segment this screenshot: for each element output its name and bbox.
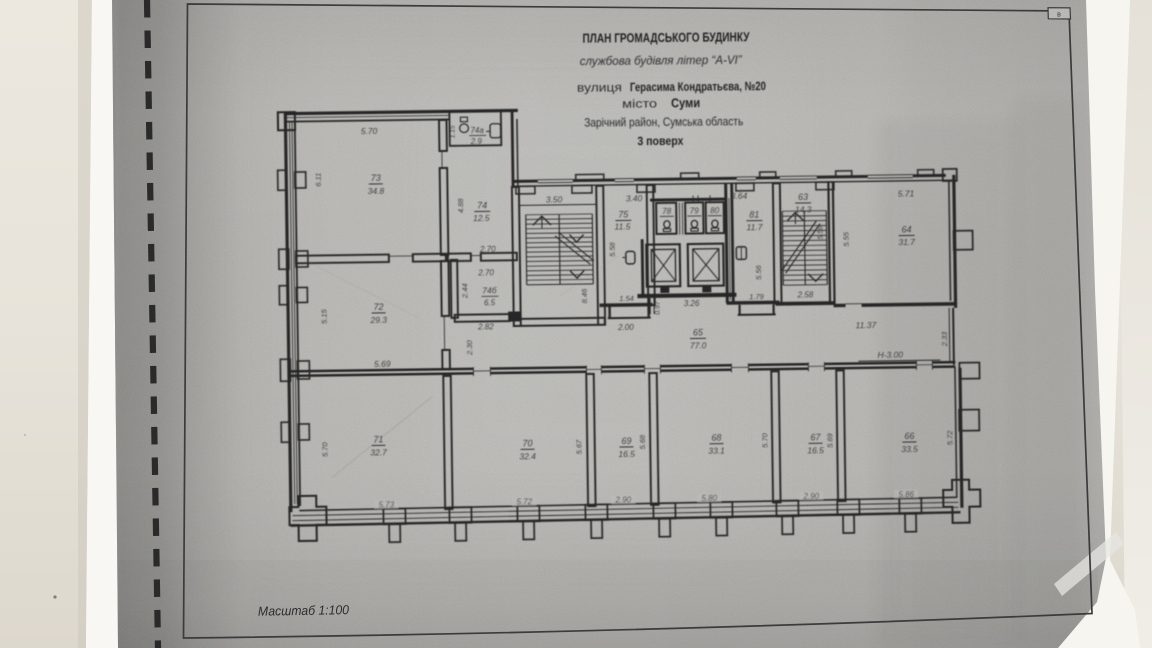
svg-text:3.26: 3.26 (684, 299, 700, 308)
svg-text:74б: 74б (482, 285, 498, 295)
svg-text:74: 74 (477, 200, 487, 210)
svg-text:16.5: 16.5 (807, 445, 824, 455)
svg-text:2.90: 2.90 (802, 492, 819, 501)
svg-text:11.37: 11.37 (855, 320, 876, 330)
svg-text:5.70: 5.70 (320, 441, 329, 457)
svg-text:5.72: 5.72 (945, 430, 954, 446)
svg-text:77.0: 77.0 (690, 340, 707, 350)
svg-text:64: 64 (901, 224, 911, 234)
svg-text:Зарічний район, Сумська област: Зарічний район, Сумська область (584, 114, 743, 129)
svg-text:Суми: Суми (671, 96, 700, 110)
svg-text:5.67: 5.67 (574, 439, 583, 455)
svg-text:11.7: 11.7 (746, 222, 762, 232)
svg-text:5.73: 5.73 (378, 500, 394, 509)
svg-text:31.7: 31.7 (898, 237, 915, 247)
svg-text:78: 78 (662, 207, 672, 216)
svg-text:3 поверх: 3 поверх (637, 134, 683, 148)
svg-text:72: 72 (373, 302, 383, 312)
svg-text:5.56: 5.56 (817, 226, 824, 240)
svg-text:5.15: 5.15 (320, 308, 329, 324)
svg-text:67: 67 (810, 432, 821, 442)
svg-text:29.3: 29.3 (369, 315, 387, 325)
svg-text:33.1: 33.1 (708, 446, 725, 456)
svg-text:ПЛАН ГРОМАДСЬКОГО БУДИНКУ: ПЛАН ГРОМАДСЬКОГО БУДИНКУ (582, 30, 749, 45)
svg-text:65: 65 (693, 327, 704, 337)
svg-text:2.58: 2.58 (797, 290, 814, 299)
svg-text:2.00: 2.00 (617, 323, 634, 332)
svg-text:5.70: 5.70 (361, 126, 378, 136)
svg-text:70: 70 (522, 438, 532, 448)
svg-text:81: 81 (749, 210, 759, 220)
svg-text:5.72: 5.72 (516, 497, 532, 506)
svg-text:5.86: 5.86 (898, 490, 914, 499)
svg-text:2.33: 2.33 (940, 331, 949, 348)
svg-text:5.56: 5.56 (754, 264, 763, 280)
svg-text:5.70: 5.70 (760, 432, 769, 448)
svg-text:5.69: 5.69 (374, 359, 391, 369)
svg-text:34.8: 34.8 (368, 186, 385, 196)
svg-text:33.5: 33.5 (901, 444, 918, 454)
svg-text:5.55: 5.55 (842, 231, 851, 247)
svg-text:8.46: 8.46 (580, 288, 589, 304)
svg-text:16.5: 16.5 (618, 449, 635, 459)
svg-text:68: 68 (711, 433, 721, 443)
svg-text:2.82: 2.82 (477, 322, 494, 331)
svg-text:2.90: 2.90 (614, 495, 631, 504)
svg-text:12.5: 12.5 (473, 213, 490, 223)
svg-text:5.58: 5.58 (608, 241, 617, 257)
svg-text:80: 80 (710, 206, 720, 215)
svg-text:6.5: 6.5 (484, 298, 496, 307)
svg-text:5.71: 5.71 (898, 188, 915, 198)
svg-text:2.44: 2.44 (460, 283, 469, 299)
svg-text:Герасима Кондратьєва, №20: Герасима Кондратьєва, №20 (630, 79, 766, 94)
svg-text:в: в (1057, 12, 1061, 19)
svg-text:1.54: 1.54 (619, 294, 634, 303)
svg-text:74а: 74а (470, 126, 484, 135)
svg-text:Н-3.00: Н-3.00 (877, 350, 903, 360)
svg-text:0.97: 0.97 (654, 300, 661, 315)
svg-text:вулиця: вулиця (577, 80, 622, 94)
svg-text:4.88: 4.88 (456, 198, 465, 214)
svg-text:2.30: 2.30 (465, 339, 474, 356)
svg-text:5.68: 5.68 (638, 434, 647, 450)
svg-text:3.64: 3.64 (731, 191, 748, 201)
svg-text:14.3: 14.3 (795, 204, 812, 214)
svg-text:79: 79 (690, 206, 700, 215)
svg-text:6.11: 6.11 (314, 173, 323, 187)
svg-text:11.5: 11.5 (614, 221, 630, 231)
svg-text:службова будівля літер “А-VI”: службова будівля літер “А-VI” (580, 53, 743, 68)
svg-text:3.40: 3.40 (626, 193, 643, 203)
svg-text:5.80: 5.80 (701, 494, 717, 503)
svg-text:32.4: 32.4 (519, 451, 536, 461)
svg-text:75: 75 (618, 209, 629, 219)
svg-text:Масштаб 1:100: Масштаб 1:100 (258, 602, 350, 619)
svg-text:63: 63 (798, 192, 808, 202)
svg-text:місто: місто (622, 97, 657, 111)
svg-text:1.15: 1.15 (450, 125, 457, 138)
svg-text:3.50: 3.50 (546, 194, 563, 204)
svg-text:66: 66 (904, 431, 914, 441)
svg-text:5.69: 5.69 (825, 432, 834, 448)
svg-text:2.9: 2.9 (470, 137, 483, 146)
svg-text:2.70: 2.70 (479, 245, 496, 254)
svg-text:73: 73 (371, 173, 381, 183)
svg-text:69: 69 (621, 436, 631, 446)
svg-text:2.70: 2.70 (477, 268, 494, 277)
svg-text:1.79: 1.79 (749, 292, 765, 301)
svg-text:32.7: 32.7 (370, 447, 387, 457)
